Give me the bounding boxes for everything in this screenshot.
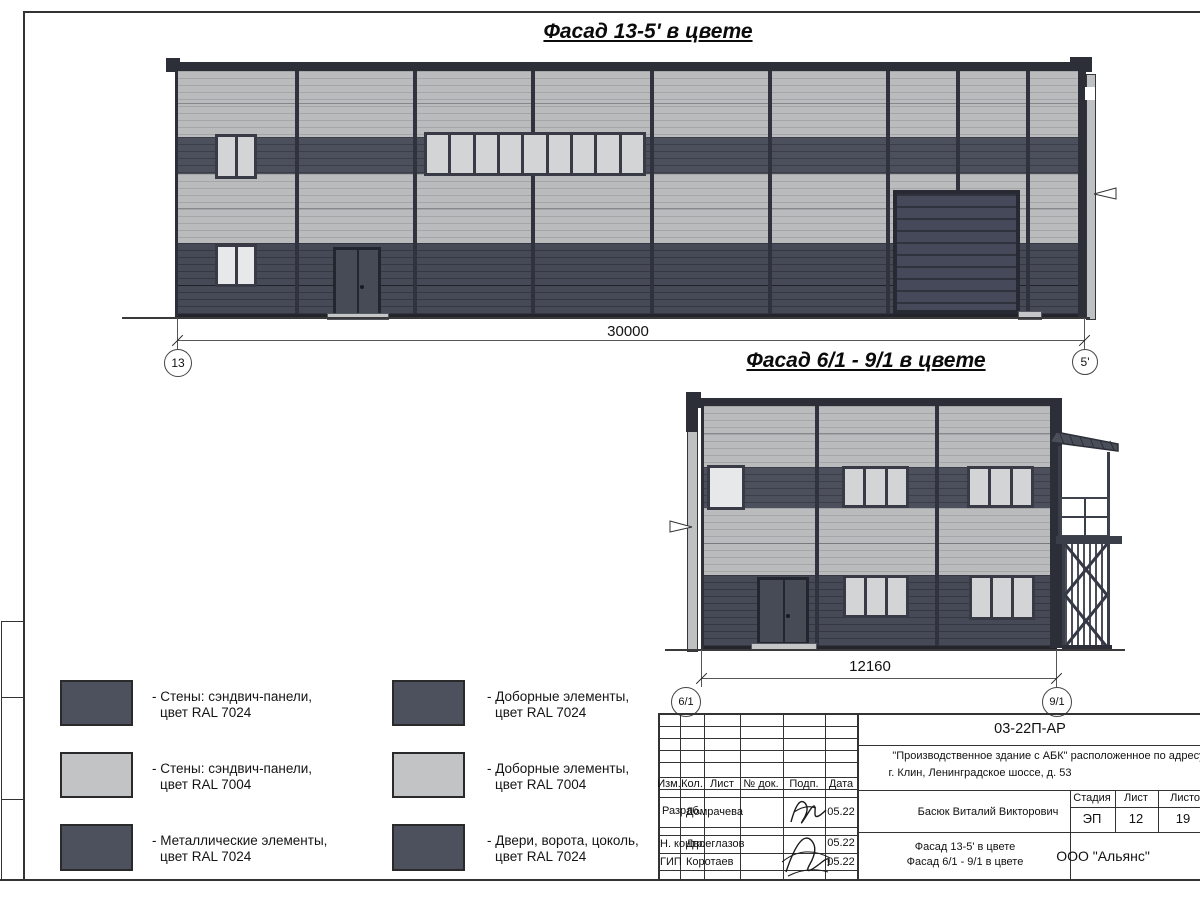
door-leaf-divider <box>357 250 359 314</box>
door-handle <box>360 285 364 289</box>
titleblock-line <box>658 762 858 763</box>
window-pane <box>991 469 1009 505</box>
legend-text-line: - Стены: сэндвич-панели, <box>152 689 312 705</box>
drawing-sheet: { "titles": { "facade1": "Фасад 13-5' в … <box>0 0 1200 900</box>
window-pane <box>549 135 570 173</box>
facade2-corner-left <box>701 406 704 650</box>
legend-swatch-walls-7004 <box>60 752 133 798</box>
legend-label: - Доборные элементы, цвет RAL 7004 <box>487 761 629 793</box>
titleblock-name: Двоеглазов <box>686 838 744 850</box>
titleblock-name: Коротаев <box>686 856 734 868</box>
legend-text-line: цвет RAL 7024 <box>487 849 639 865</box>
window-pane <box>524 135 545 173</box>
facade2-band-light-lower <box>701 508 1057 575</box>
titleblock-name: Домрачева <box>686 806 743 818</box>
titleblock-stage-label: Стадия <box>1073 792 1111 804</box>
legend-text-line: цвет RAL 7004 <box>487 777 629 793</box>
facade2-window-upper-mid <box>842 466 909 508</box>
titleblock-line <box>858 790 1200 791</box>
titleblock-role: ГИП <box>660 856 682 868</box>
axis-label: 9/1 <box>1049 696 1064 708</box>
titleblock-date: 05.22 <box>827 806 855 818</box>
facade1-entrance-door <box>333 247 381 317</box>
frame-left-border <box>23 11 25 881</box>
facade2-title: Фасад 6/1 - 9/1 в цвете <box>746 349 985 373</box>
titleblock-approver: Басюк Виталий Викторович <box>918 806 1059 818</box>
titleblock-stage-value: ЭП <box>1083 811 1102 826</box>
titleblock-header-izm: Изм. <box>657 778 681 790</box>
legend-label: - Двери, ворота, цоколь, цвет RAL 7024 <box>487 833 639 865</box>
facade2-mullion <box>935 406 939 646</box>
legend-text-line: цвет RAL 7004 <box>152 777 312 793</box>
titleblock-sheet-label: Лист <box>1124 792 1148 804</box>
titleblock-project-line1: "Производственное здание с АБК" располож… <box>892 750 1200 762</box>
titleblock-sheet-value: 12 <box>1129 811 1143 826</box>
facade2-downpipe-head <box>686 408 698 432</box>
legend-text-line: - Стены: сэндвич-панели, <box>152 761 312 777</box>
titleblock-company: ООО "Альянс" <box>1056 848 1150 864</box>
door-leaf-divider <box>783 580 785 642</box>
axis-label: 13 <box>171 356 184 370</box>
titleblock-line <box>1115 790 1116 832</box>
facade1-dimension-line <box>177 340 1085 341</box>
frame-top-border <box>23 11 1200 13</box>
legend-text-line: - Доборные элементы, <box>487 689 629 705</box>
leader-arrow-icon <box>668 519 694 534</box>
window-pane <box>500 135 521 173</box>
titleblock-line <box>1070 790 1071 881</box>
extension-line <box>1056 650 1057 687</box>
facade1-dimension-text: 30000 <box>607 323 649 340</box>
window-pane <box>238 137 255 176</box>
facade2-window-lower-right <box>969 575 1035 620</box>
titleblock-project-line2: г. Клин, Ленинградское шоссе, д. 53 <box>889 767 1072 779</box>
window-pane <box>846 578 864 615</box>
extension-line <box>1084 318 1085 349</box>
facade1-axis-left-bubble: 13 <box>164 349 192 377</box>
window-pane <box>573 135 594 173</box>
facade1-band-light-upper <box>175 71 1080 137</box>
stair-landing-slab <box>1056 536 1122 544</box>
window-pane <box>451 135 472 173</box>
titleblock-line <box>658 738 858 739</box>
axis-label: 5' <box>1081 355 1090 369</box>
axis-label: 6/1 <box>678 696 693 708</box>
window-pane <box>218 247 235 284</box>
window-pane <box>888 469 906 505</box>
facade2-dimension-text: 12160 <box>849 658 891 675</box>
legend-text-line: - Металлические элементы, <box>152 833 327 849</box>
facade1-title: Фасад 13-5' в цвете <box>543 20 752 44</box>
frame-margin-divider <box>1 799 23 800</box>
facade2-entrance-door <box>757 577 809 645</box>
window-pane <box>238 247 255 284</box>
window-pane <box>867 578 885 615</box>
facade1-corner-right <box>1078 68 1086 318</box>
railing-bar <box>1062 516 1108 518</box>
titleblock-line <box>858 745 1200 746</box>
titleblock-header-ndok: № док. <box>743 778 778 790</box>
facade2-window-upper-left <box>707 465 745 510</box>
frame-bottom-border <box>0 879 1200 881</box>
facade1-mullion <box>1026 71 1030 314</box>
titleblock-sheets-label: Листов <box>1170 792 1200 804</box>
stair-cross-bracing <box>1062 544 1110 647</box>
window-pane <box>866 469 884 505</box>
titleblock-drawing-title-line2: Фасад 6/1 - 9/1 в цвете <box>907 856 1024 868</box>
window-pane <box>845 469 863 505</box>
facade1-corner-left <box>175 71 178 318</box>
frame-margin-divider <box>1 697 23 698</box>
facade1-downpipe-gap <box>1085 87 1095 100</box>
legend-label: - Металлические элементы, цвет RAL 7024 <box>152 833 327 865</box>
door-handle <box>786 614 790 618</box>
titleblock-line <box>1158 790 1159 832</box>
legend-swatch-flashing-7004 <box>392 752 465 798</box>
legend-swatch-flashing-7024 <box>392 680 465 726</box>
legend-text-line: - Доборные элементы, <box>487 761 629 777</box>
legend-text-line: цвет RAL 7024 <box>152 849 327 865</box>
extension-line <box>177 318 178 349</box>
facade1-axis-right-bubble: 5' <box>1072 349 1098 375</box>
window-pane <box>972 578 990 617</box>
panel-joint <box>175 103 1080 104</box>
titleblock-line <box>658 750 858 751</box>
titleblock-header-kol: Кол. <box>681 778 703 790</box>
signature-gip <box>778 826 838 880</box>
facade2-window-lower-mid <box>843 575 909 618</box>
titleblock-header-data: Дата <box>829 778 853 790</box>
extension-line <box>701 650 702 687</box>
legend-label: - Стены: сэндвич-панели, цвет RAL 7024 <box>152 689 312 721</box>
facade1-mullion <box>886 71 890 314</box>
window-pane <box>427 135 448 173</box>
window-pane <box>218 137 235 176</box>
frame-margin-line <box>1 621 2 880</box>
titleblock-line <box>858 832 1200 833</box>
facade1-window-lower-left <box>215 244 257 287</box>
legend-label: - Стены: сэндвич-панели, цвет RAL 7004 <box>152 761 312 793</box>
titleblock-header-list: Лист <box>710 778 734 790</box>
legend-swatch-walls-7024 <box>60 680 133 726</box>
titleblock-sheets-value: 19 <box>1176 811 1190 826</box>
titleblock-line <box>1070 807 1200 808</box>
facade1-mullion <box>768 71 772 314</box>
window-pane <box>710 468 742 507</box>
window-pane <box>888 578 906 615</box>
facade1-mullion <box>413 71 417 314</box>
facade2-dimension-line <box>701 678 1057 679</box>
facade2-parapet-cap <box>694 398 1062 406</box>
legend-swatch-doors-7024 <box>392 824 465 871</box>
titleblock-header-podp: Подп. <box>789 778 818 790</box>
window-pane <box>993 578 1011 617</box>
legend-text-line: - Двери, ворота, цоколь, <box>487 833 639 849</box>
facade1-parapet-cap <box>170 62 1085 71</box>
stair-canopy-roof <box>1050 430 1124 456</box>
legend-label: - Доборные элементы, цвет RAL 7024 <box>487 689 629 721</box>
window-pane <box>622 135 643 173</box>
frame-margin-divider <box>1 621 23 622</box>
window-pane <box>1014 578 1032 617</box>
legend-swatch-metal-7024 <box>60 824 133 871</box>
facade1-window-upper-left <box>215 134 257 179</box>
facade1-ground-line <box>122 317 1090 319</box>
legend-text-line: цвет RAL 7024 <box>152 705 312 721</box>
window-pane <box>476 135 497 173</box>
facade1-window-ribbon <box>424 132 646 176</box>
facade1-mullion <box>531 71 535 314</box>
facade2-window-upper-right <box>967 466 1034 508</box>
titleblock-drawing-title-line1: Фасад 13-5' в цвете <box>915 841 1015 853</box>
facade1-mullion <box>295 71 299 314</box>
leader-arrow-icon <box>1092 186 1118 201</box>
panel-joint <box>701 543 1057 544</box>
facade1-mullion <box>650 71 654 314</box>
window-pane <box>597 135 618 173</box>
panel-joint <box>701 433 1057 434</box>
window-pane <box>1013 469 1031 505</box>
window-pane <box>970 469 988 505</box>
titleblock-line <box>658 726 858 727</box>
facade2-band-light-upper <box>701 406 1057 467</box>
facade1-sectional-gate <box>893 190 1020 314</box>
titleblock-doc-number: 03-22П-АР <box>994 721 1066 737</box>
facade2-mullion <box>815 406 819 646</box>
legend-text-line: цвет RAL 7024 <box>487 705 629 721</box>
